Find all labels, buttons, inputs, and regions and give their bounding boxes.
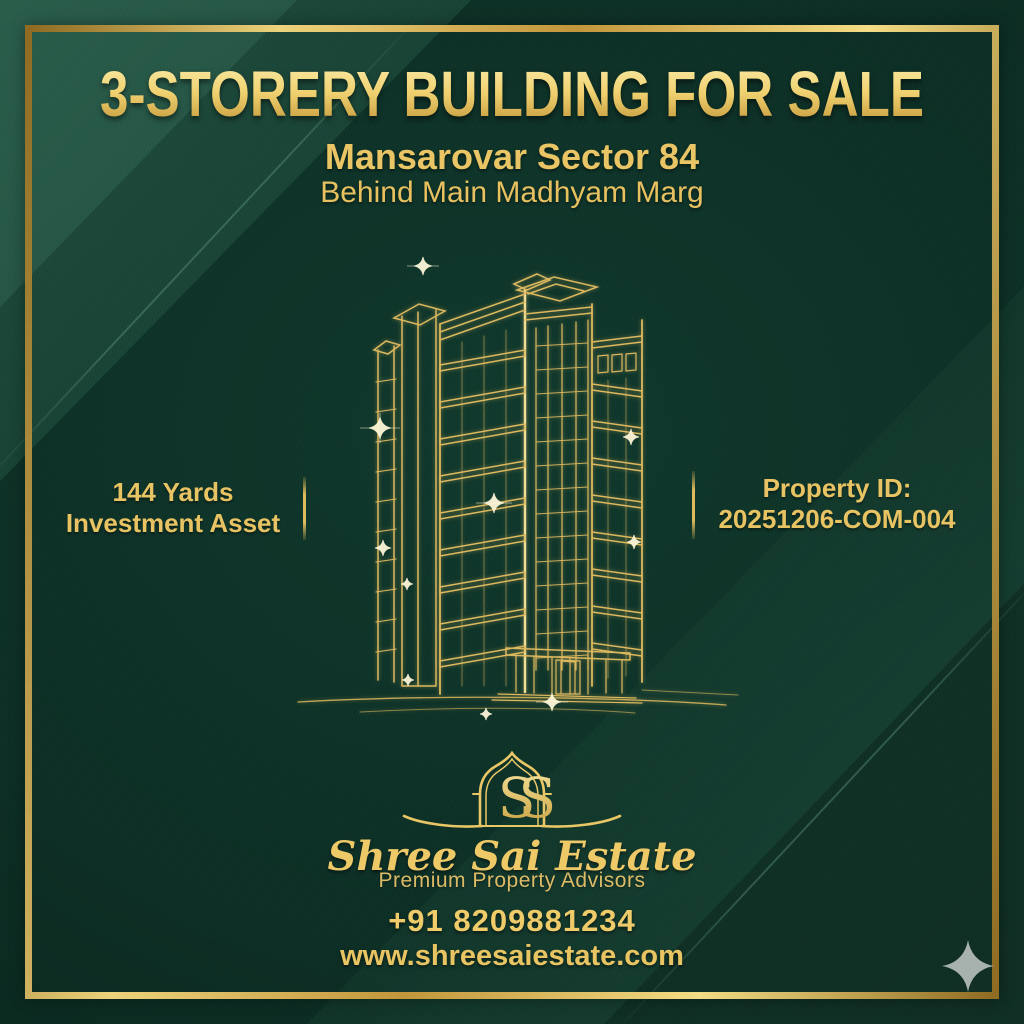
- right-divider: [692, 471, 695, 539]
- area-stat: 144 Yards Investment Asset: [58, 477, 288, 539]
- website-url: www.shreesaiestate.com: [0, 940, 1024, 973]
- property-id-label: Property ID:: [712, 473, 962, 504]
- property-id-stat: Property ID: 20251206-COM-004: [712, 473, 962, 535]
- four-point-star-icon: [941, 939, 995, 993]
- logo-left-wing: [404, 816, 482, 827]
- arch-monogram-logo-icon: SS: [392, 750, 632, 834]
- area-value: 144 Yards: [58, 477, 288, 508]
- property-id-value: 20251206-COM-004: [712, 504, 962, 535]
- poster-title: 3-STORERY BUILDING FOR SALE: [100, 62, 924, 126]
- location-line-1: Mansarovar Sector 84: [0, 136, 1024, 178]
- logo-right-wing: [542, 816, 620, 827]
- left-divider: [303, 477, 306, 540]
- phone-number: +91 8209881234: [0, 903, 1024, 939]
- location-line-2: Behind Main Madhyam Marg: [0, 176, 1024, 210]
- building-line-art-illustration: [290, 250, 730, 730]
- brand-tagline: Premium Property Advisors: [0, 869, 1024, 893]
- headline-row: 3-STORERY BUILDING FOR SALE: [0, 62, 1024, 126]
- asset-type: Investment Asset: [58, 508, 288, 539]
- property-sale-poster: 3-STORERY BUILDING FOR SALE Mansarovar S…: [0, 0, 1024, 1024]
